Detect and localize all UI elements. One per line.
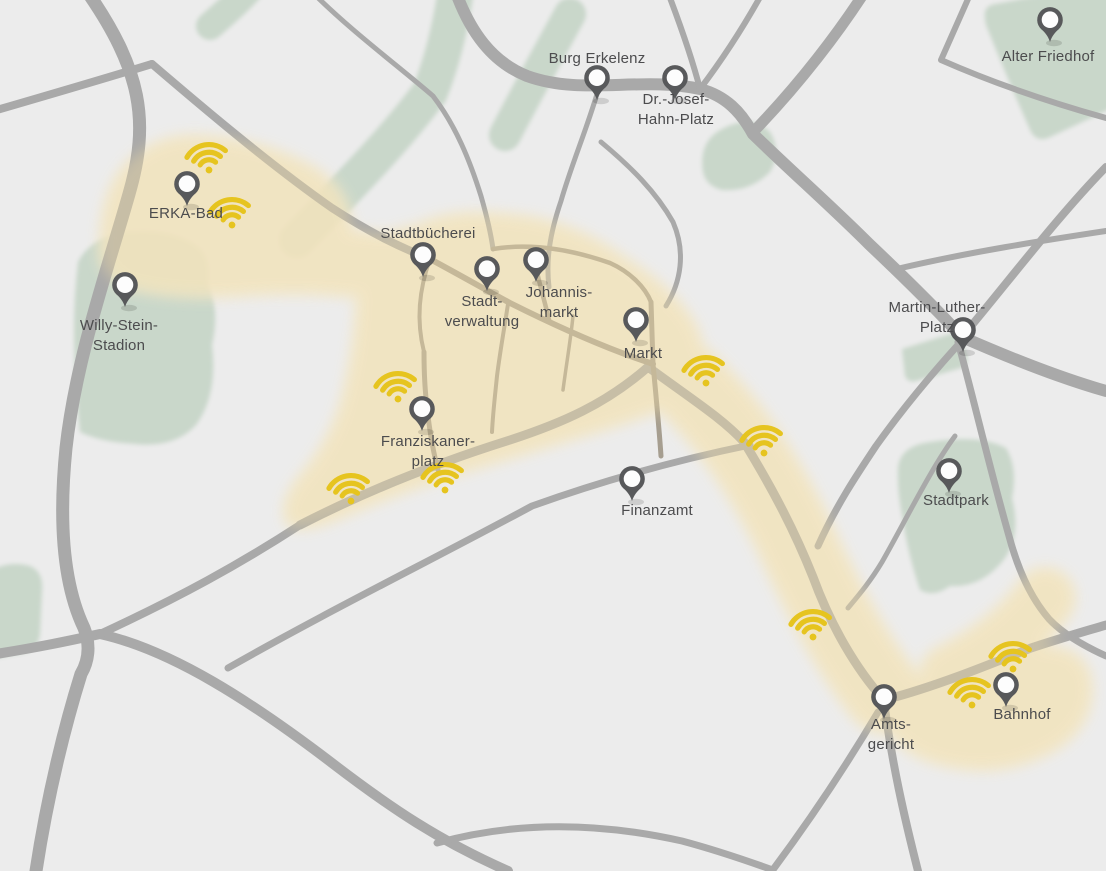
place-label-stadtbuecherei: Stadtbücherei xyxy=(380,225,475,242)
place-label-erka-bad: ERKA-Bad xyxy=(149,205,223,222)
city-map: Burg ErkelenzDr.-Josef-Hahn-PlatzAlter F… xyxy=(0,0,1106,871)
place-label-burg-erkelenz: Burg Erkelenz xyxy=(549,50,646,67)
place-label-markt: Markt xyxy=(624,345,663,362)
place-label-bahnhof: Bahnhof xyxy=(993,706,1051,723)
place-label-stadtpark: Stadtpark xyxy=(923,492,989,509)
place-label-finanzamt: Finanzamt xyxy=(621,502,693,519)
place-label-alter-friedhof: Alter Friedhof xyxy=(1002,48,1095,65)
map-canvas: Burg ErkelenzDr.-Josef-Hahn-PlatzAlter F… xyxy=(0,0,1106,871)
